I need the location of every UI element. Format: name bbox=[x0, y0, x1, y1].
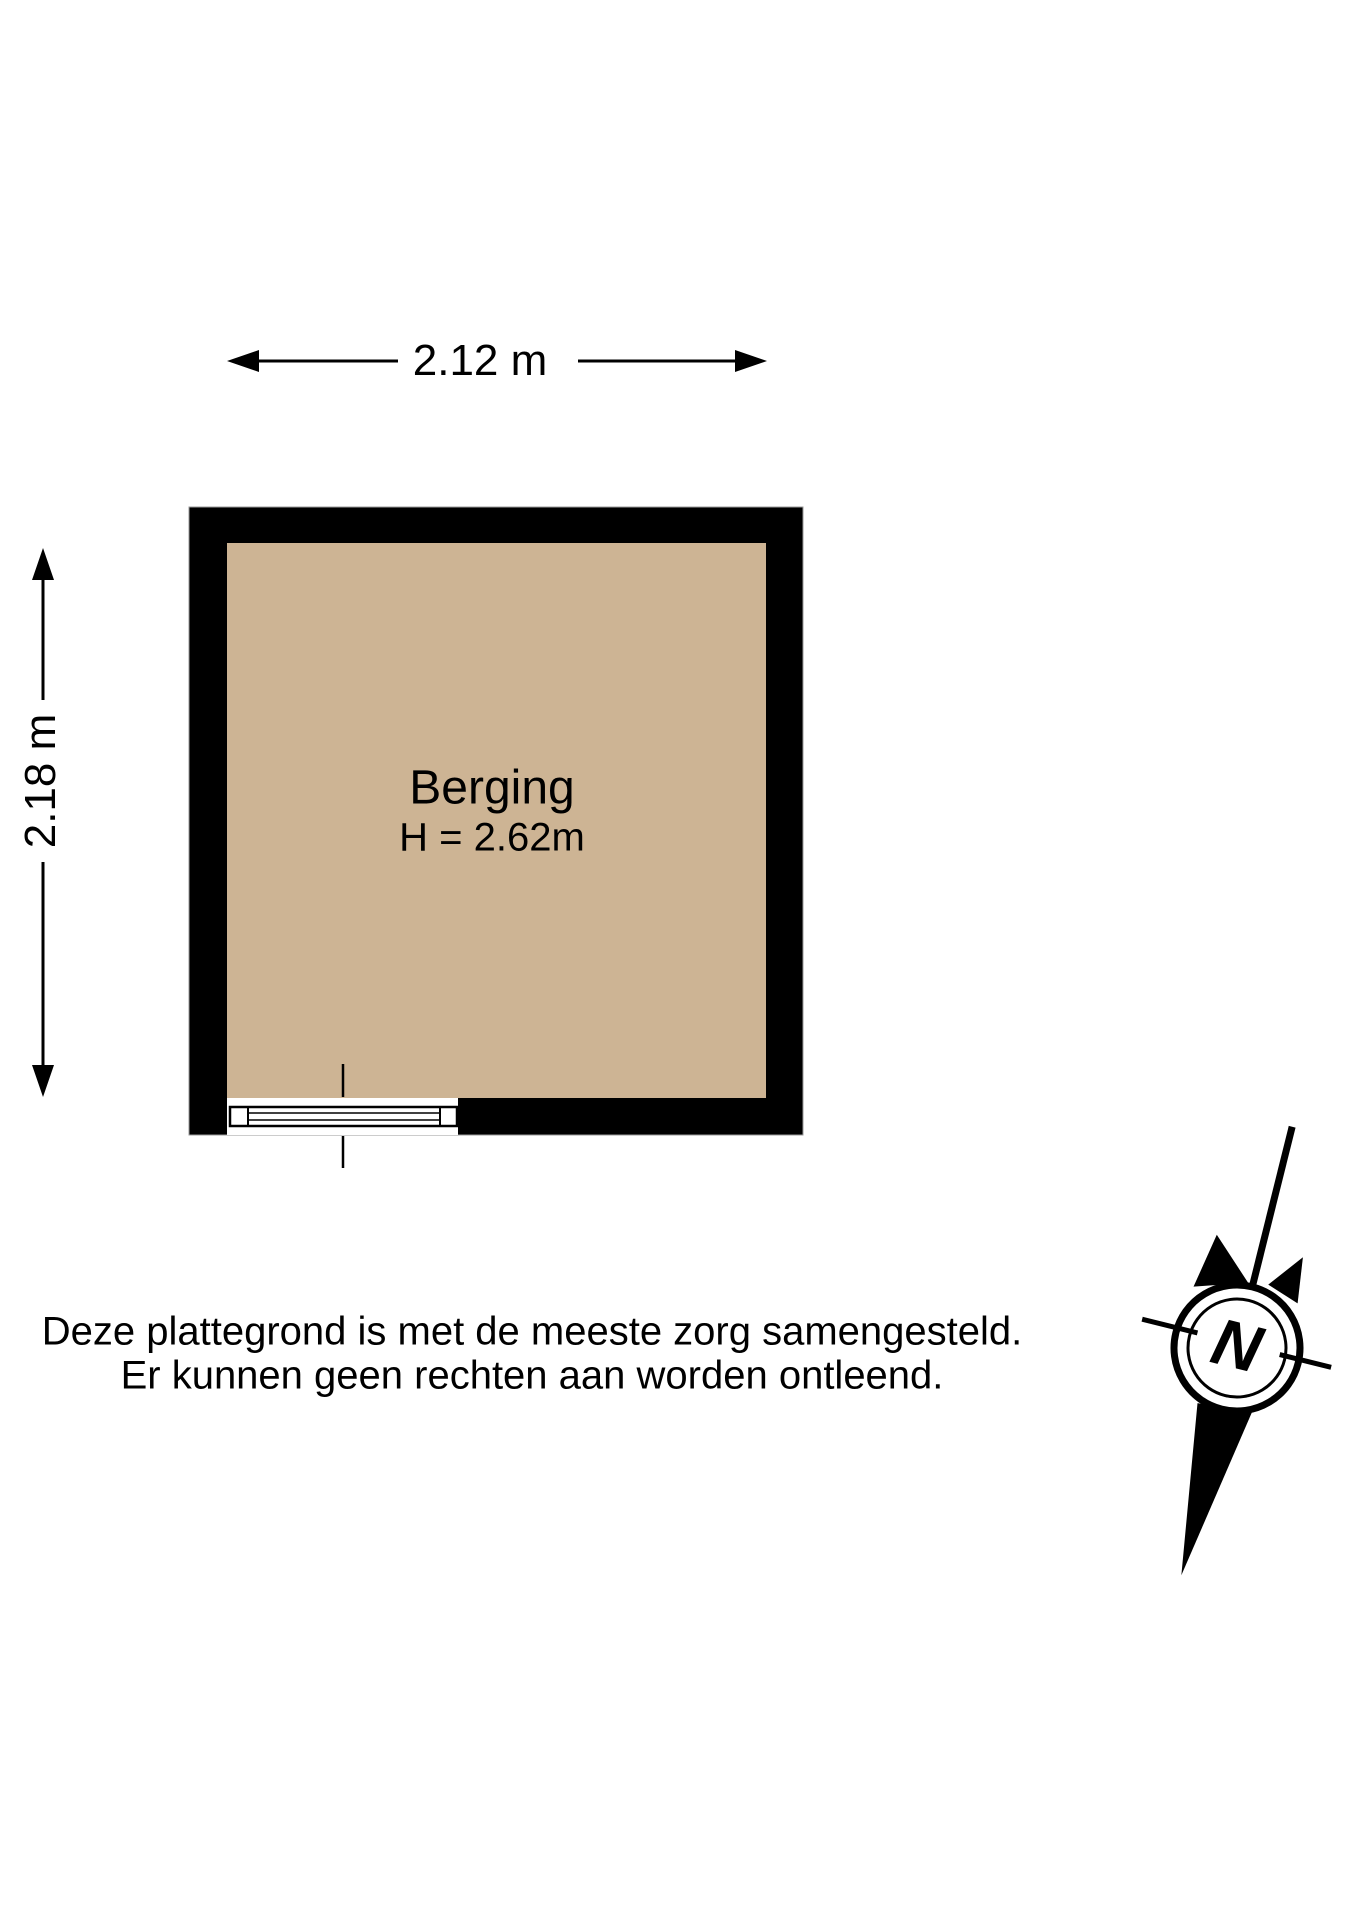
arrow-right-icon bbox=[735, 350, 767, 372]
compass-south-needle bbox=[1156, 1399, 1252, 1582]
compass-north-line bbox=[1251, 1127, 1292, 1292]
floorplan-drawing bbox=[0, 0, 1358, 1920]
disclaimer-line-2: Er kunnen geen rechten aan worden ontlee… bbox=[121, 1354, 944, 1399]
arrow-left-icon bbox=[227, 350, 259, 372]
floorplan-page: 2.12 m 2.18 m Berging H = 2.62m Deze pla… bbox=[0, 0, 1358, 1920]
arrow-up-icon bbox=[32, 548, 54, 580]
width-dimension-label: 2.12 m bbox=[413, 336, 548, 386]
arrow-down-icon bbox=[32, 1065, 54, 1097]
window-icon bbox=[230, 1107, 457, 1126]
disclaimer-line-1: Deze plattegrond is met de meeste zorg s… bbox=[42, 1310, 1023, 1355]
room-ceiling-height-label: H = 2.62m bbox=[399, 816, 585, 861]
room-name-label: Berging bbox=[409, 761, 574, 816]
height-dimension-label: 2.18 m bbox=[16, 714, 66, 849]
